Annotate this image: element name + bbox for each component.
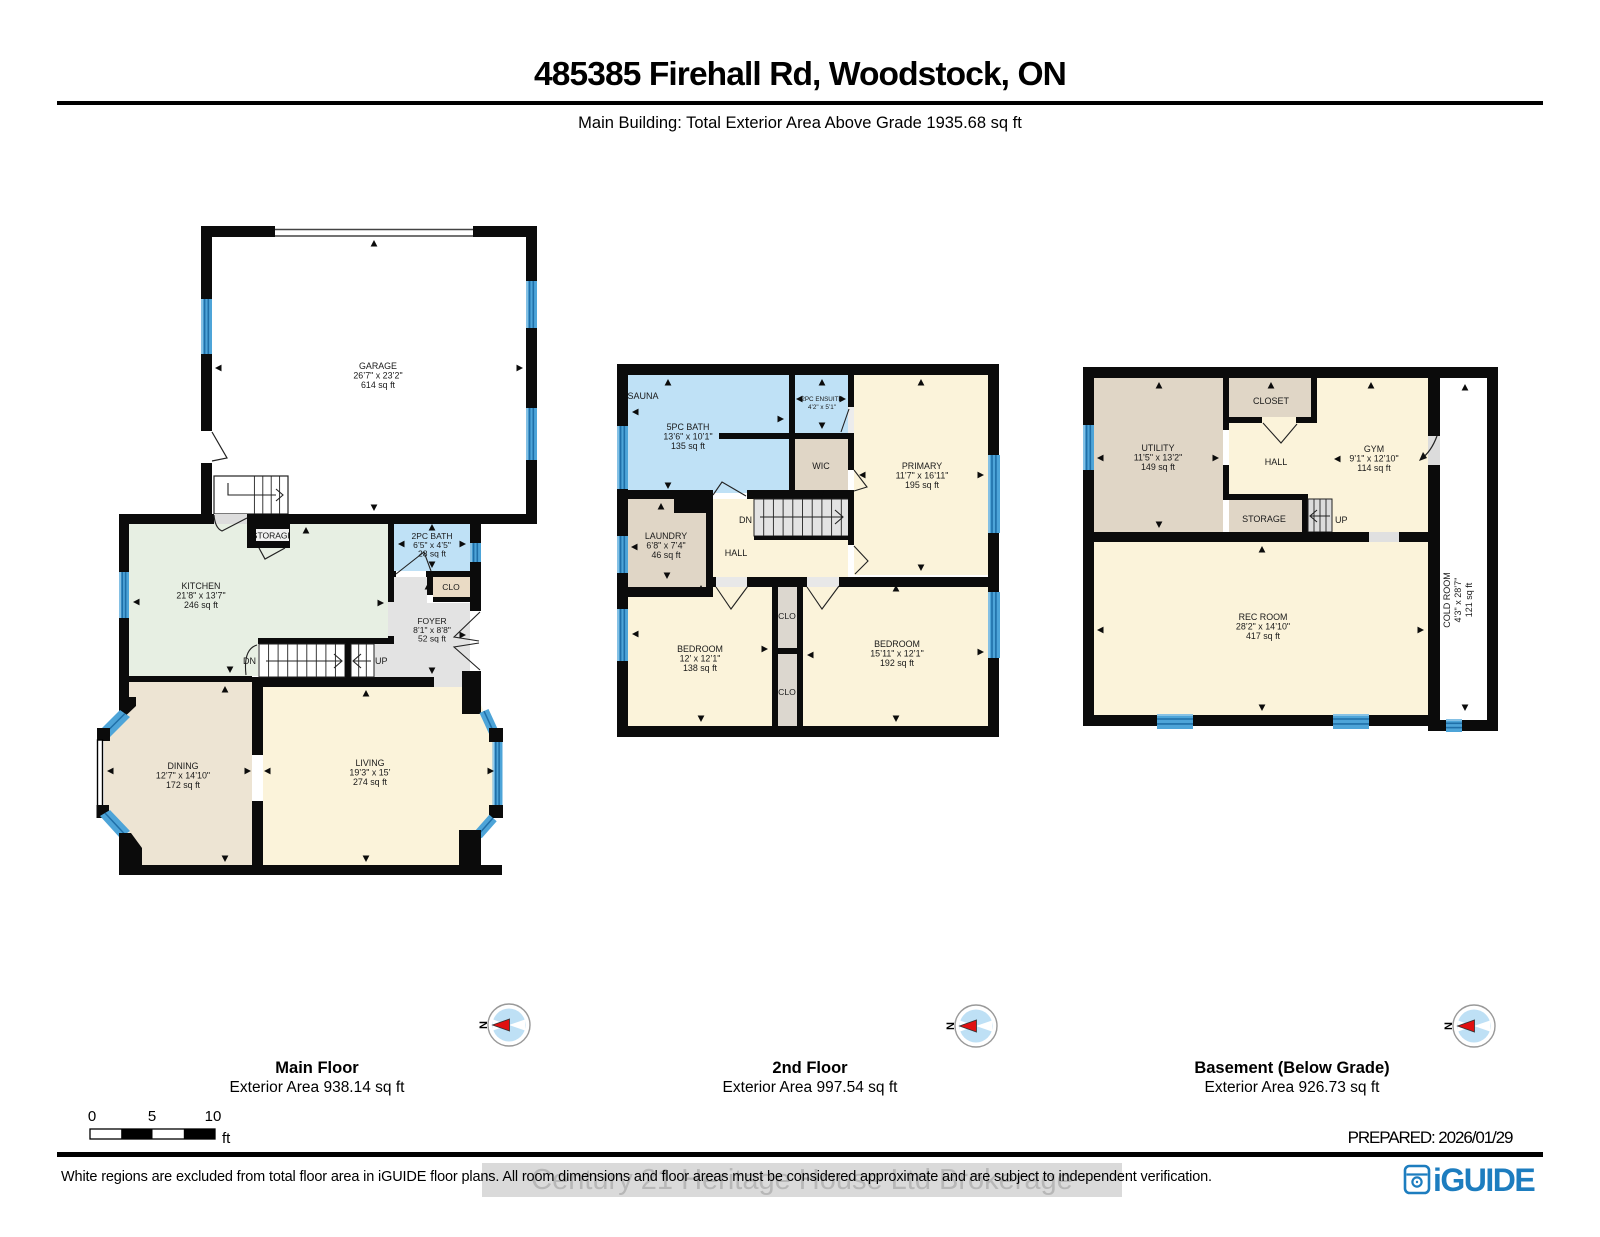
svg-text:iGUIDE: iGUIDE [1433, 1162, 1535, 1198]
svg-text:Main Building: Total Exterior: Main Building: Total Exterior Area Above… [578, 114, 1022, 132]
svg-text:WIC: WIC [812, 461, 830, 471]
svg-text:0: 0 [88, 1108, 96, 1125]
svg-text:UP: UP [375, 656, 388, 666]
svg-text:614 sq ft: 614 sq ft [361, 380, 396, 390]
svg-text:Exterior Area 926.73 sq ft: Exterior Area 926.73 sq ft [1205, 1079, 1381, 1096]
svg-text:STORAGE: STORAGE [1242, 514, 1286, 524]
svg-text:121 sq ft: 121 sq ft [1464, 582, 1474, 617]
svg-text:Basement (Below Grade): Basement (Below Grade) [1194, 1059, 1389, 1077]
svg-text:Exterior Area 997.54 sq ft: Exterior Area 997.54 sq ft [723, 1079, 899, 1096]
svg-text:COLD ROOM: COLD ROOM [1442, 572, 1452, 628]
svg-text:N: N [945, 1022, 957, 1030]
svg-text:2nd Floor: 2nd Floor [772, 1059, 848, 1077]
svg-text:28 sq ft: 28 sq ft [418, 549, 447, 559]
svg-text:Main Floor: Main Floor [275, 1059, 359, 1077]
svg-text:N: N [478, 1021, 490, 1029]
svg-text:Exterior Area 938.14 sq ft: Exterior Area 938.14 sq ft [230, 1079, 406, 1096]
svg-text:HALL: HALL [725, 548, 748, 558]
svg-text:138 sq ft: 138 sq ft [683, 663, 718, 673]
svg-text:DN: DN [739, 515, 752, 525]
svg-text:274 sq ft: 274 sq ft [353, 777, 388, 787]
svg-text:CLO: CLO [778, 687, 796, 697]
svg-text:149 sq ft: 149 sq ft [1141, 462, 1176, 472]
svg-text:HALL: HALL [1265, 457, 1288, 467]
svg-text:CLOSET: CLOSET [1253, 396, 1290, 406]
svg-text:2PC ENSUITE: 2PC ENSUITE [801, 396, 842, 403]
svg-text:ft: ft [222, 1130, 231, 1147]
svg-text:N: N [1443, 1022, 1455, 1030]
svg-text:White regions are excluded fro: White regions are excluded from total fl… [61, 1169, 1212, 1185]
svg-text:DN: DN [243, 656, 256, 666]
svg-text:SAUNA: SAUNA [627, 391, 658, 401]
svg-text:10: 10 [205, 1108, 222, 1125]
svg-text:4’2" x 5’1": 4’2" x 5’1" [808, 404, 836, 411]
svg-text:135 sq ft: 135 sq ft [671, 441, 706, 451]
svg-text:46 sq ft: 46 sq ft [651, 550, 681, 560]
svg-text:114 sq ft: 114 sq ft [1357, 463, 1391, 473]
svg-text:PREPARED: 2026/01/29: PREPARED: 2026/01/29 [1348, 1128, 1513, 1147]
svg-text:CLO: CLO [778, 611, 796, 621]
svg-text:195 sq ft: 195 sq ft [905, 480, 940, 490]
svg-text:246 sq ft: 246 sq ft [184, 600, 219, 610]
svg-text:5: 5 [148, 1108, 156, 1125]
svg-text:STORAGE: STORAGE [252, 531, 294, 541]
svg-text:485385 Firehall Rd, Woodstock,: 485385 Firehall Rd, Woodstock, ON [534, 56, 1066, 93]
svg-text:4’3" x 28’7": 4’3" x 28’7" [1453, 578, 1463, 623]
svg-text:52 sq ft: 52 sq ft [418, 634, 447, 644]
svg-text:UP: UP [1335, 515, 1348, 525]
svg-text:172 sq ft: 172 sq ft [166, 780, 201, 790]
svg-text:417 sq ft: 417 sq ft [1246, 631, 1281, 641]
svg-text:CLO: CLO [442, 582, 460, 592]
svg-text:192 sq ft: 192 sq ft [880, 658, 915, 668]
